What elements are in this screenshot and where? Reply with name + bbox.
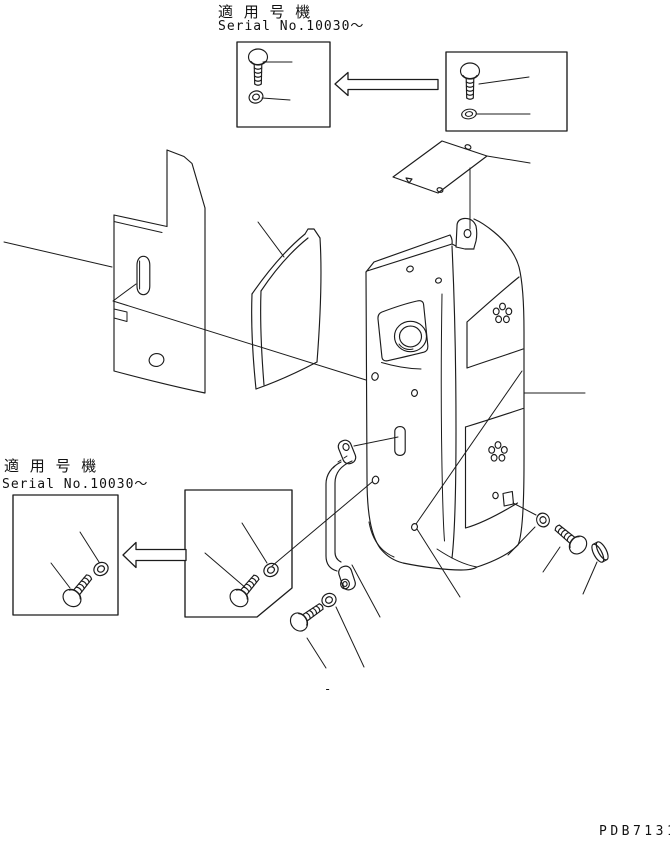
detail-box-bottom-left (13, 495, 118, 615)
cover-plate (393, 141, 530, 229)
leader-line (336, 607, 364, 667)
tab-hole (464, 230, 471, 238)
substitution-arrow-bottom (123, 543, 186, 568)
drawing-code: PDB7131 (599, 824, 670, 839)
bolt-icon (249, 49, 268, 85)
leader-line (262, 98, 290, 100)
parts-diagram-page: 適 用 号 機 Serial No.10030～ (0, 0, 670, 843)
oval-slot (395, 427, 405, 456)
bottom-applicable-label: 適 用 号 機 (4, 457, 99, 475)
leader-line (4, 242, 112, 267)
bottom-serial-label: Serial No.10030～ (2, 477, 148, 492)
center-dash-mark: - (324, 682, 331, 696)
mounting-bracket (4, 150, 366, 393)
handle-hole (342, 443, 350, 452)
top-tab (456, 218, 477, 249)
leader-line (113, 284, 366, 380)
main-side-cover (272, 218, 585, 597)
leader-line (205, 553, 247, 589)
washer-icon (261, 561, 280, 579)
washer-icon (535, 511, 551, 528)
grab-handle (326, 437, 398, 617)
vent-hole-cluster (493, 303, 511, 322)
leader-line (354, 437, 398, 446)
leader-line (272, 482, 372, 566)
leader-line (80, 532, 99, 562)
washer-bolt-cap-bottom-right (508, 503, 610, 594)
detail-box-top-right (446, 52, 567, 131)
top-serial-label: Serial No.10030～ (218, 19, 364, 34)
leader-line (51, 563, 70, 588)
leader-line (543, 547, 560, 572)
vent-hole-cluster (489, 442, 507, 461)
leader-line (352, 565, 380, 617)
leader-line (242, 523, 267, 563)
top-serial-note: 適 用 号 機 Serial No.10030～ (218, 3, 364, 34)
leader-line (583, 562, 597, 594)
notch (114, 309, 127, 322)
leader-line (513, 503, 536, 515)
bolt-icon (287, 598, 328, 634)
detail-box-top-left (237, 42, 330, 127)
curved-plate (252, 222, 321, 389)
washer-icon (91, 560, 110, 578)
leader-line (307, 638, 326, 668)
arrow-left-icon (123, 543, 186, 568)
bolt-icon (60, 570, 98, 610)
cap-plug-icon (590, 540, 611, 564)
leader-line (258, 222, 284, 257)
detail-box-bottom-right (185, 490, 292, 617)
exploded-parts-drawing: 適 用 号 機 Serial No.10030～ (0, 0, 670, 843)
washer-icon (461, 108, 477, 120)
round-hole (148, 352, 165, 368)
bottom-serial-note: 適 用 号 機 Serial No.10030～ (2, 457, 148, 492)
bolt-washer-bottom-center (287, 591, 364, 668)
leader-line (479, 77, 529, 84)
leader-line (487, 156, 530, 163)
bolt-icon (461, 63, 480, 99)
substitution-arrow-top (335, 73, 438, 96)
arrow-left-icon (335, 73, 438, 96)
slot-hole (137, 256, 150, 294)
square-hole (503, 492, 514, 507)
washer-icon (247, 89, 264, 105)
